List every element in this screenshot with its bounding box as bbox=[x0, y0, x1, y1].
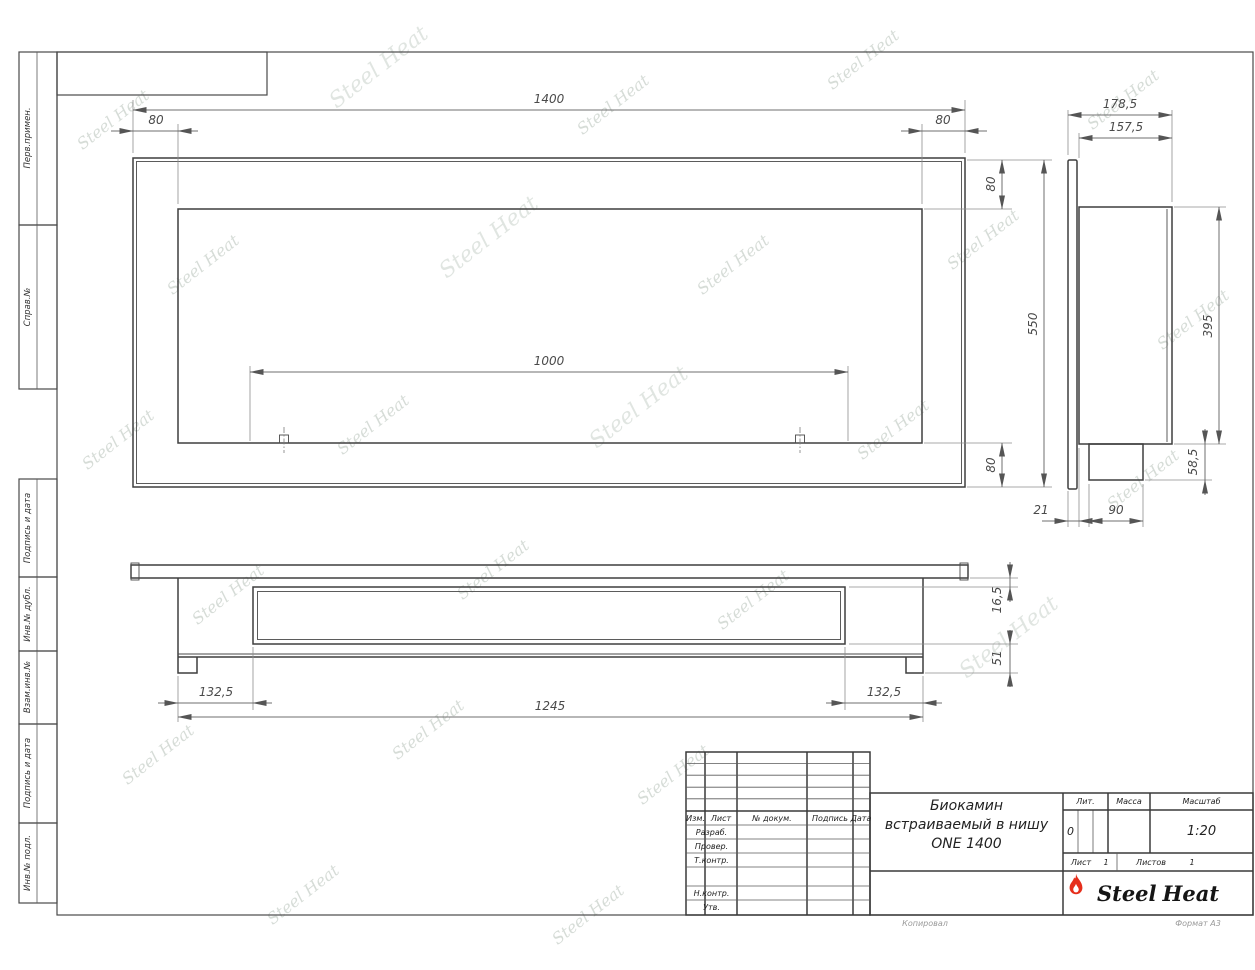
title-block-role-developed: Разраб. bbox=[686, 825, 737, 839]
dim-front-margin-left: 80 bbox=[148, 113, 164, 127]
sheets-label: Листов bbox=[1122, 853, 1180, 871]
sheets-value: 1 bbox=[1184, 853, 1200, 871]
sidebar-label-perv-primen: Перв.примен. bbox=[23, 107, 33, 168]
title-block-role-tcontrol: Т.контр. bbox=[686, 853, 737, 867]
document-title-line1: Биокамин bbox=[872, 796, 1061, 815]
title-block-header-doc: № докум. bbox=[737, 811, 807, 825]
footer-format-label: Формат A3 bbox=[1158, 916, 1238, 930]
sidebar-label-sprav-no: Справ.№ bbox=[23, 288, 33, 327]
title-block-header-list: Лист bbox=[705, 811, 737, 825]
dim-side-box-width: 90 bbox=[1108, 503, 1124, 517]
dim-plan-inset-left: 132,5 bbox=[199, 685, 233, 699]
lit-value: 0 bbox=[1063, 810, 1078, 853]
dim-front-margin-bottom: 80 bbox=[984, 457, 998, 473]
sheet-label: Лист bbox=[1065, 853, 1097, 871]
front-view-dimensions: 1400 80 80 80 550 80 1000 bbox=[111, 92, 1052, 487]
sidebar-label-podpis-data-2: Подпись и дата bbox=[23, 738, 33, 808]
sidebar-label-vzam-inv: Взам.инв.№ bbox=[23, 661, 33, 713]
sidebar-label-inv-podl: Инв.№ подл. bbox=[23, 835, 33, 891]
dim-front-height: 550 bbox=[1026, 312, 1040, 335]
dim-front-margin-top: 80 bbox=[984, 176, 998, 192]
logo-text-heat: Heat bbox=[1163, 881, 1220, 906]
dim-side-flange-thickness: 21 bbox=[1033, 503, 1048, 517]
drawing-sheet: Steel Heat Steel Heat Steel Heat Steel H… bbox=[0, 0, 1255, 970]
dim-plan-flange-gap: 16,5 bbox=[990, 587, 1004, 614]
plan-view-dimensions: 16,5 51 132,5 1245 132,5 bbox=[158, 562, 1018, 722]
dim-side-depth-total: 178,5 bbox=[1103, 97, 1137, 111]
dim-plan-box-depth: 51 bbox=[990, 650, 1004, 665]
sheet-value: 1 bbox=[1098, 853, 1114, 871]
dim-side-body-height: 395 bbox=[1201, 315, 1215, 338]
sidebar-label-inv-dubl: Инв.№ дубл. bbox=[23, 586, 33, 641]
sidebar-label-podpis-data-1: Подпись и дата bbox=[23, 493, 33, 563]
lit-label: Лит. bbox=[1063, 793, 1108, 810]
title-block-header-date: Дата bbox=[851, 811, 871, 825]
side-view-dimensions: 178,5 157,5 395 58,5 21 90 bbox=[1033, 97, 1226, 527]
dim-side-depth-body: 157,5 bbox=[1109, 120, 1143, 134]
document-title-line2: встраиваемый в нишу bbox=[872, 815, 1061, 834]
logo-text-steel: Steel bbox=[1097, 881, 1157, 906]
title-block-header-izm: Изм. bbox=[686, 811, 705, 825]
dim-front-margin-right: 80 bbox=[935, 113, 951, 127]
dim-plan-body-width: 1245 bbox=[535, 699, 566, 713]
title-block-role-ncontrol: Н.контр. bbox=[686, 886, 737, 900]
dim-side-box-height: 58,5 bbox=[1186, 449, 1200, 476]
dim-front-width: 1400 bbox=[534, 92, 565, 106]
title-block-role-checked: Провер. bbox=[686, 839, 737, 853]
dim-plan-inset-right: 132,5 bbox=[867, 685, 901, 699]
title-block-role-approved: Утв. bbox=[686, 900, 737, 914]
front-view bbox=[133, 158, 965, 487]
footer-copied-label: Копировал bbox=[885, 916, 965, 930]
scale-label: Масштаб bbox=[1150, 793, 1253, 810]
steel-heat-logo: Steel Heat bbox=[1065, 872, 1251, 914]
scale-value: 1:20 bbox=[1150, 810, 1253, 853]
document-title-line3: ONE 1400 bbox=[872, 834, 1061, 853]
dim-front-burner-length: 1000 bbox=[534, 354, 565, 368]
side-view bbox=[1068, 160, 1172, 489]
plan-view bbox=[131, 563, 968, 673]
title-block-header-sign: Подпись bbox=[807, 811, 853, 825]
mass-label: Масса bbox=[1108, 793, 1150, 810]
